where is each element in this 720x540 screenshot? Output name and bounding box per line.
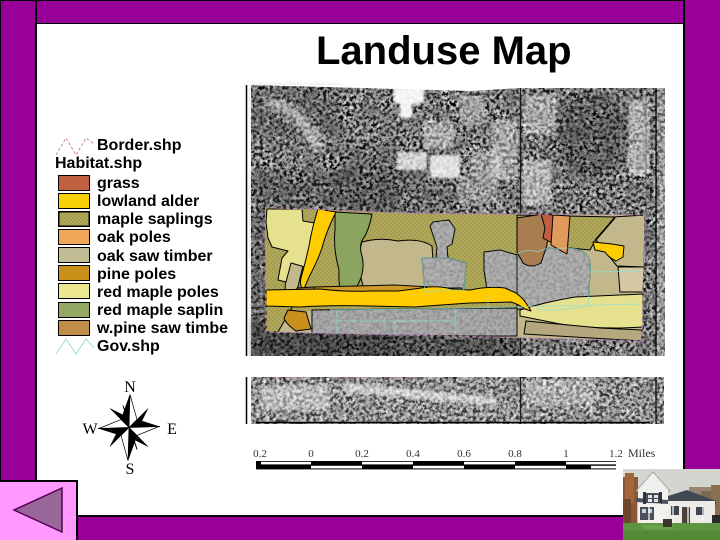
svg-text:0.6: 0.6 <box>457 448 471 460</box>
svg-text:0.4: 0.4 <box>406 448 420 460</box>
svg-text:Miles: Miles <box>628 446 656 460</box>
svg-text:0.2: 0.2 <box>253 448 267 460</box>
svg-text:0.2: 0.2 <box>355 448 369 460</box>
svg-text:0: 0 <box>308 448 314 460</box>
svg-text:1.2: 1.2 <box>609 448 623 460</box>
svg-text:0.8: 0.8 <box>508 448 522 460</box>
svg-text:1: 1 <box>563 448 569 460</box>
